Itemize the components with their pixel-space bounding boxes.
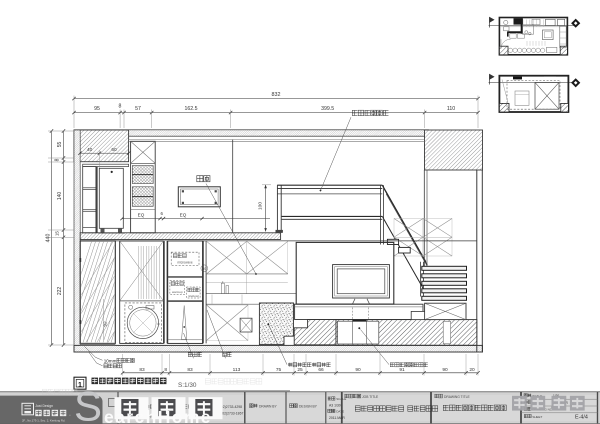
svg-text:10mm: 10mm [104,358,117,363]
svg-text:ricebowl: ricebowl [188,294,199,298]
svg-text:DESIGN BY: DESIGN BY [299,405,318,409]
svg-text:40: 40 [87,147,93,153]
svg-text:113: 113 [233,367,241,373]
svg-text:warmup: warmup [172,290,183,294]
svg-text:A3 1/30: A3 1/30 [329,404,341,408]
svg-text:8: 8 [55,158,61,161]
svg-text:.: . [69,412,70,418]
svg-text:EQ: EQ [138,212,145,217]
svg-text:SHEET: SHEET [532,415,542,419]
svg-text:832: 832 [272,92,281,98]
svg-text:55: 55 [57,142,63,148]
svg-text:57: 57 [135,106,141,112]
svg-text:8: 8 [164,367,167,373]
svg-text:110: 110 [447,106,455,112]
svg-text:60: 60 [111,147,117,153]
svg-text:earchHome: earchHome [104,407,212,424]
svg-text:2011.MAR: 2011.MAR [329,416,345,420]
svg-text:100: 100 [258,202,264,210]
svg-text:92: 92 [103,321,109,327]
svg-text:15: 15 [55,231,60,237]
svg-text:83: 83 [139,367,145,373]
svg-text:Just Design: Just Design [35,404,53,408]
svg-text:E-4/4: E-4/4 [575,415,588,421]
svg-text:91: 91 [399,367,405,373]
svg-text:162.5: 162.5 [185,106,198,112]
svg-text:90: 90 [355,367,361,373]
svg-text:399.5: 399.5 [321,106,334,112]
svg-text:90: 90 [442,367,448,373]
svg-text:microwave: microwave [177,260,192,264]
svg-text:JOB TITLE: JOB TITLE [362,395,379,399]
svg-text:83: 83 [187,367,193,373]
svg-text:140: 140 [57,192,63,201]
svg-text:222: 222 [57,287,63,296]
svg-text:DATE: DATE [336,410,344,414]
svg-text:66: 66 [318,367,324,373]
svg-text:EQ: EQ [180,212,187,217]
svg-text:DRAWING TITLE: DRAWING TITLE [444,395,470,399]
svg-text:2F., No.173-1, Sec. 2, Keelung: 2F., No.173-1, Sec. 2, Keelung Rd. [22,418,65,422]
svg-text:8: 8 [119,104,122,110]
svg-text:20: 20 [469,367,475,373]
svg-text:S:1/30: S:1/30 [178,382,197,389]
svg-text:75: 75 [276,367,282,373]
svg-text:S: S [74,383,102,424]
svg-text:DRAWN BY: DRAWN BY [259,405,277,409]
svg-text:95: 95 [94,106,100,112]
svg-text:25: 25 [297,367,303,373]
svg-text:440: 440 [46,234,52,243]
